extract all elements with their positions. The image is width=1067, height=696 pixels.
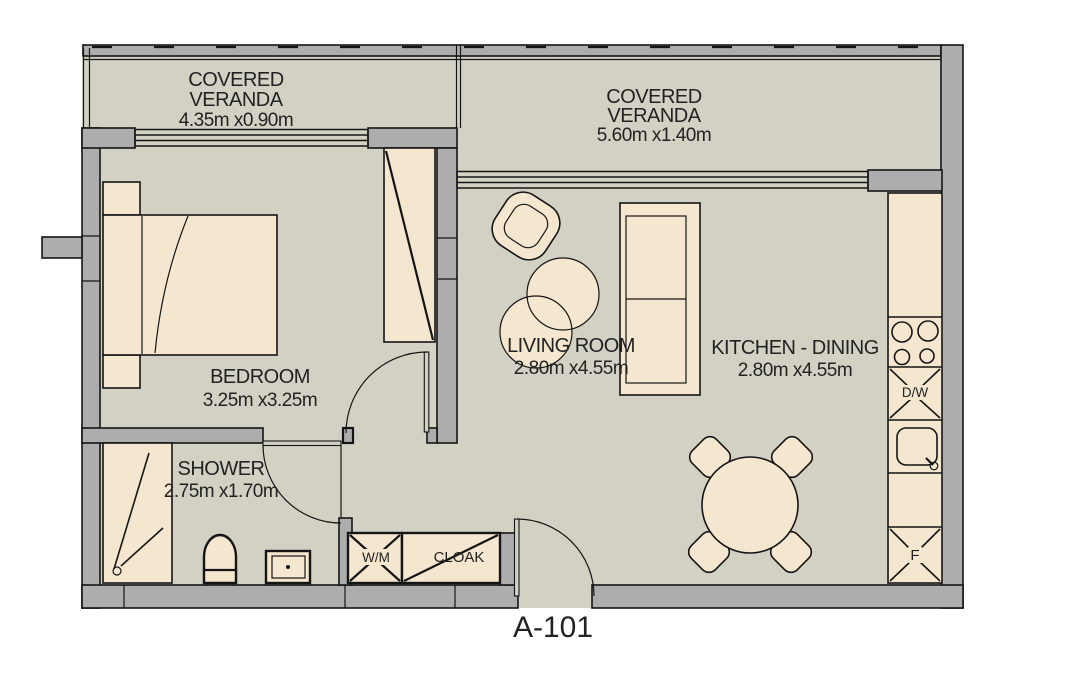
toilet [204,535,236,583]
shower-tray [103,443,172,583]
bottom-wall-right [592,585,963,608]
door-mullion [343,428,353,443]
right-exterior-wall [941,45,963,608]
dishwasher-label: D/W [902,385,929,400]
dining-table [702,457,798,553]
bedroom-shower-wall [82,428,263,443]
bottom-wall-left [82,585,518,608]
shower-door-leaf [263,441,341,446]
veranda-left-dims: 4.35m x0.90m [179,110,293,131]
nightstand [103,182,140,215]
cloak-label: CLOAK [434,549,485,566]
bedroom-dims: 3.25m x3.25m [203,390,317,411]
entrance-door-leaf [515,519,520,596]
veranda-right-dims: 5.60m x1.40m [597,125,711,146]
bed [103,215,277,355]
shower-dims: 2.75m x1.70m [164,481,278,502]
bedroom-window-pier-left [82,128,135,148]
kitchen-dims: 2.80m x4.55m [738,360,852,381]
bedroom-window-pier-right [368,128,457,148]
nightstand [103,355,140,388]
floorplan-page: W/M CLOAK D/W [0,0,1067,696]
veranda-left-label-1: COVERED [188,69,283,91]
unit-title: A-101 [513,611,593,644]
bedroom-label: BEDROOM [210,366,310,388]
washbasin-drain [286,565,290,569]
veranda-railing [83,45,941,56]
veranda-right-label-2: VERANDA [607,105,701,127]
shower-label: SHOWER [178,458,265,480]
hall-closets: W/M CLOAK [348,533,500,583]
left-wall-pier [42,237,82,258]
livingroom-partition-wall [437,148,457,443]
livingroom-dims: 2.80m x4.55m [514,358,628,379]
fridge-label: F [910,547,919,564]
livingroom-label: LIVING ROOM [507,335,635,357]
kitchen-counter: D/W F [888,193,942,583]
kitchen-label: KITCHEN - DINING [711,337,879,359]
cloak-wall-stub [500,533,515,585]
veranda-left-label-2: VERANDA [189,89,283,111]
sofa [620,203,700,395]
floorplan-a101: W/M CLOAK D/W [0,0,1067,696]
washing-machine-label: W/M [362,550,390,565]
kitchen-wall-stub [868,170,942,191]
left-exterior-wall [82,128,100,608]
bedroom-door-leaf [424,352,429,432]
